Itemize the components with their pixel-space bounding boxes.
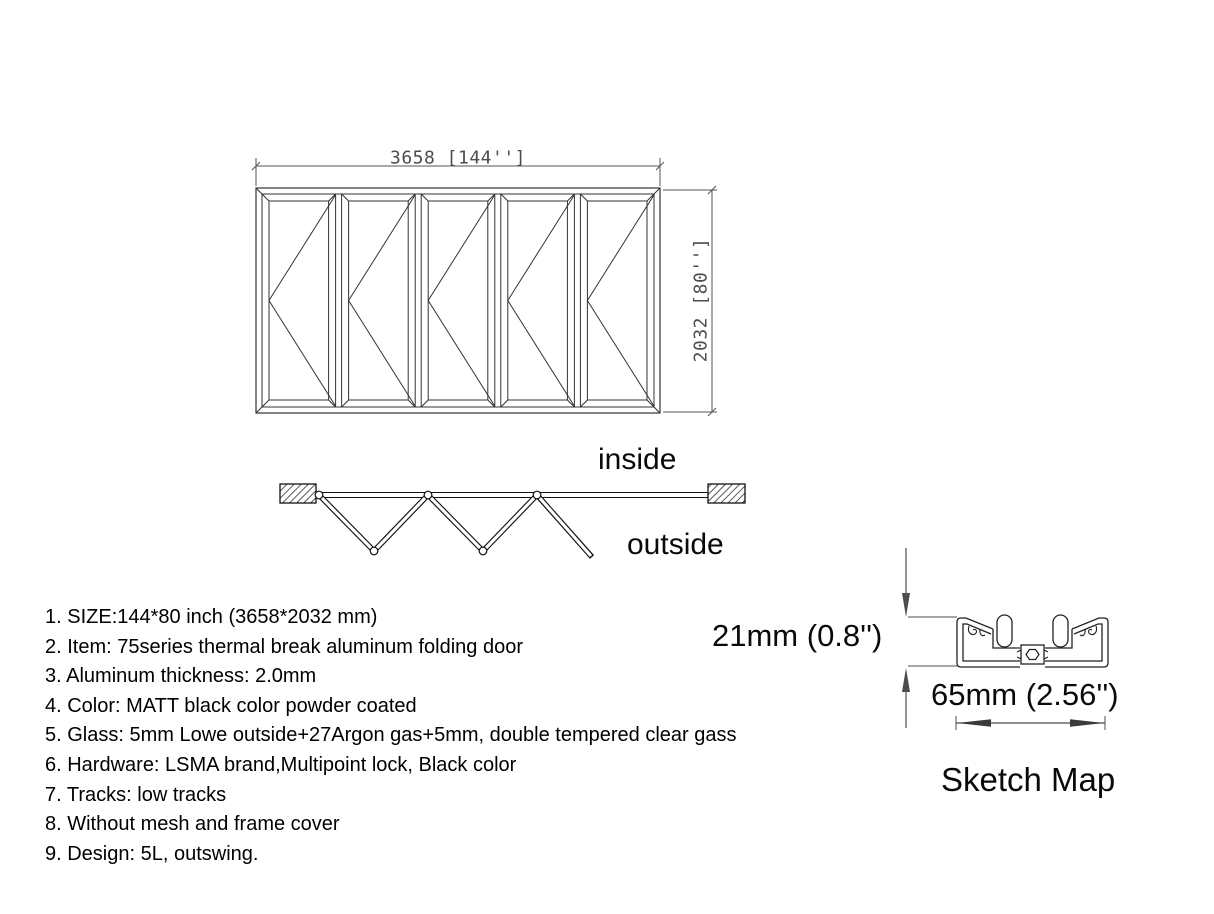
track-width-dimension: 65mm (2.56'') [931,677,1119,713]
track-height-dimension: 21mm (0.8'') [712,618,882,654]
sketch-map-caption: Sketch Map [941,761,1115,799]
inside-label: inside [598,443,676,477]
spec-item-9: 9. Design: 5L, outswing. [45,840,736,870]
spec-item-2: 2. Item: 75series thermal break aluminum… [45,633,736,663]
spec-item-5: 5. Glass: 5mm Lowe outside+27Argon gas+5… [45,721,736,751]
spec-item-8: 8. Without mesh and frame cover [45,810,736,840]
spec-item-6: 6. Hardware: LSMA brand,Multipoint lock,… [45,751,736,781]
specification-list: 1. SIZE:144*80 inch (3658*2032 mm) 2. It… [45,603,736,869]
elevation-height-dimension: 2032 [80''] [691,238,712,363]
spec-item-4: 4. Color: MATT black color powder coated [45,692,736,722]
wall-section-left [280,484,316,503]
spec-item-3: 3. Aluminum thickness: 2.0mm [45,662,736,692]
elevation-width-dimension: 3658 [144''] [390,148,526,169]
spec-item-7: 7. Tracks: low tracks [45,781,736,811]
drawing-canvas: 3658 [144''] 2032 [80''] inside outside … [0,0,1214,914]
track-profile-drawing [957,615,1108,667]
wall-section-right [708,484,745,503]
spec-item-1: 1. SIZE:144*80 inch (3658*2032 mm) [45,603,736,633]
door-elevation-drawing [256,188,660,413]
outside-label: outside [627,528,724,562]
